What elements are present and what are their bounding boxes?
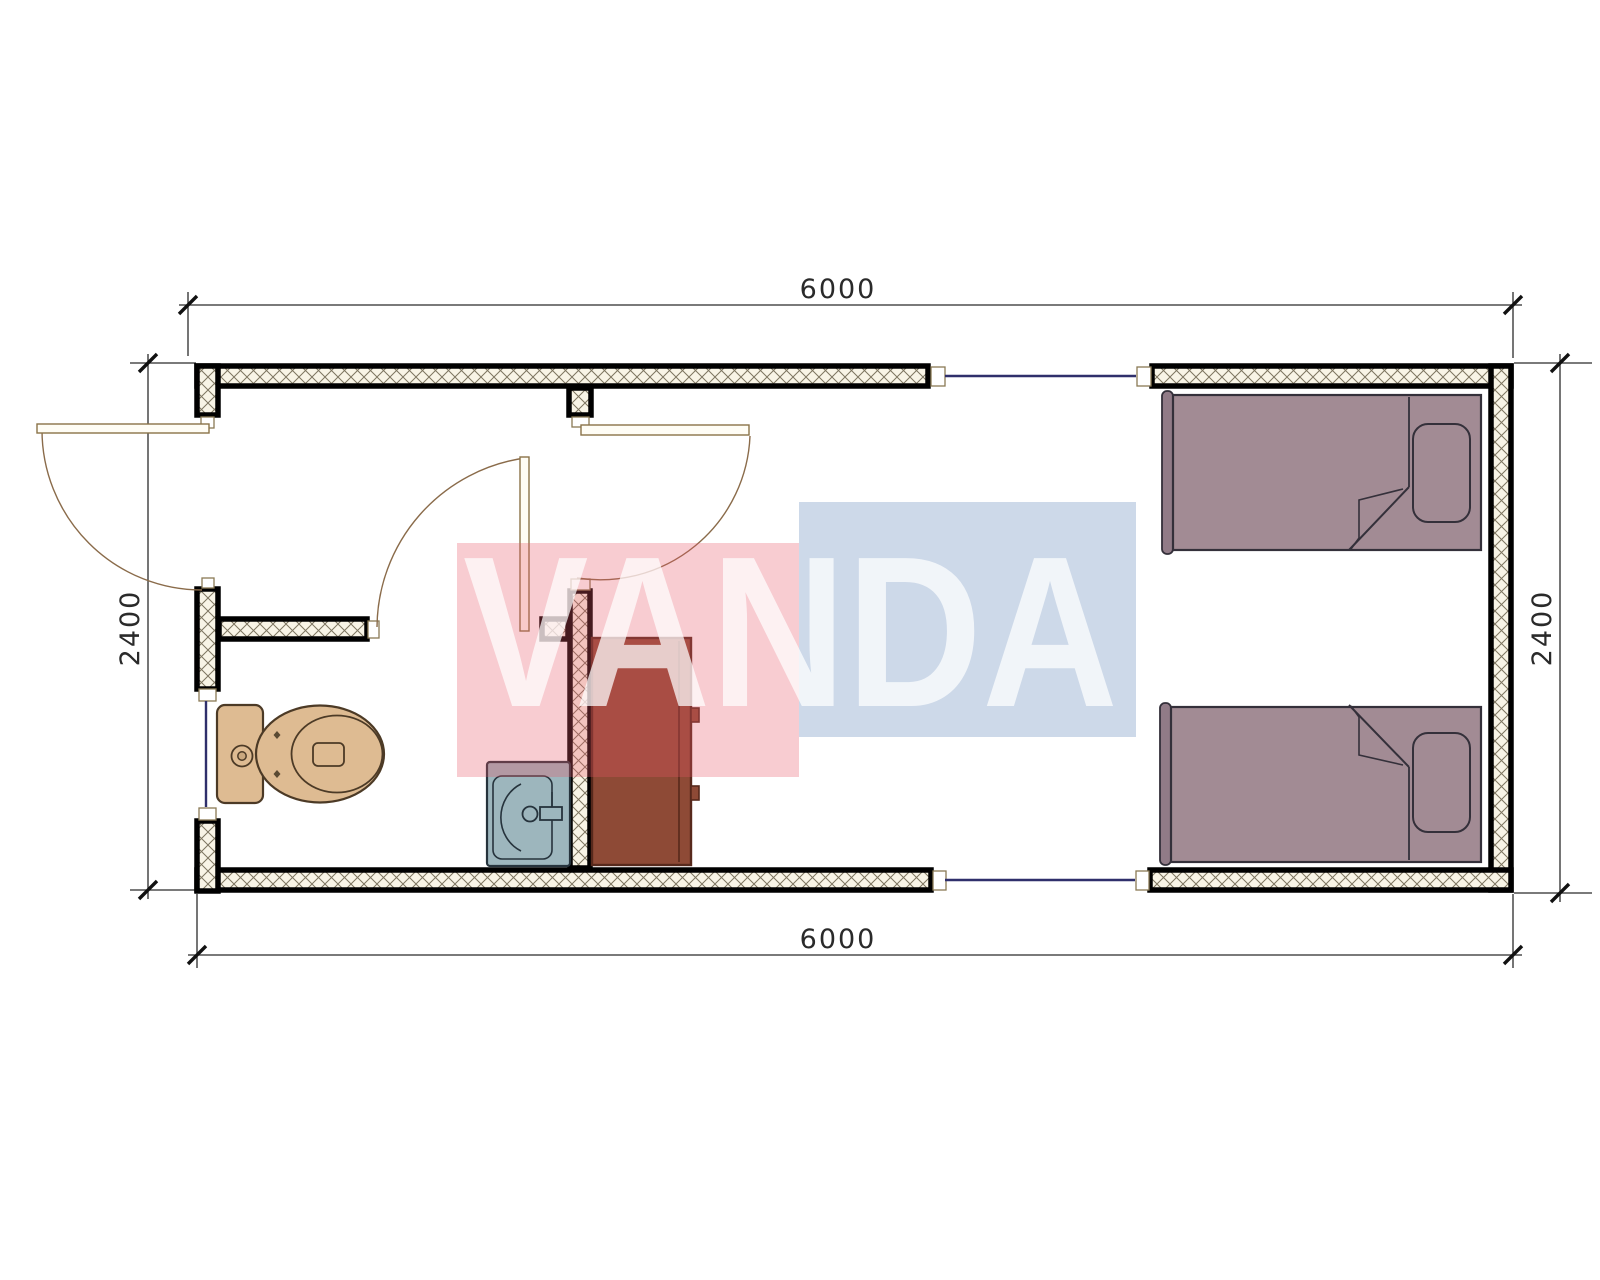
exterior-wall-left-lower xyxy=(197,821,218,891)
dimension-label-right: 2400 xyxy=(1527,590,1558,667)
bed-bottom xyxy=(1160,703,1481,865)
window-jamb xyxy=(199,808,216,820)
exterior-wall-left-mid xyxy=(197,589,218,689)
dimension-label-top: 6000 xyxy=(800,274,877,305)
watermark: VANDA xyxy=(457,502,1136,777)
entrance-door-leaf xyxy=(37,424,209,433)
sink-drain xyxy=(523,807,538,822)
bedroom-door-leaf xyxy=(581,425,749,435)
bed-pillow xyxy=(1413,424,1470,522)
exterior-wall-bottom-right xyxy=(1150,870,1511,890)
bed-headboard xyxy=(1160,703,1171,865)
wall-jamb-top-center xyxy=(569,388,591,415)
dimension-label-left: 2400 xyxy=(115,590,146,667)
window-jamb xyxy=(933,871,946,890)
bed-pillow xyxy=(1413,733,1470,832)
wash-basin xyxy=(487,762,570,866)
floor-plan-page: 6000 6000 2400 2400 xyxy=(0,0,1600,1280)
window-jamb xyxy=(199,689,216,701)
toilet-flush-button xyxy=(313,743,344,766)
cabinet-hinge xyxy=(691,786,699,800)
exterior-wall-right xyxy=(1491,366,1511,890)
sink-faucet xyxy=(540,807,562,820)
toilet-valve-knob-center xyxy=(238,752,246,760)
exterior-wall-bottom-left xyxy=(197,870,931,890)
entrance-door-swing-arc xyxy=(42,430,202,590)
toilet xyxy=(217,705,384,803)
window-jamb xyxy=(1136,871,1149,890)
window-jamb xyxy=(931,367,945,386)
floor-plan-drawing: 6000 6000 2400 2400 xyxy=(0,0,1600,1280)
watermark-text: VANDA xyxy=(463,511,1118,752)
dimension-label-bottom: 6000 xyxy=(800,924,877,955)
door-jamb xyxy=(202,578,214,588)
bed-top xyxy=(1162,391,1481,554)
exterior-wall-top-left xyxy=(197,366,928,386)
bed-headboard xyxy=(1162,391,1173,554)
window-jamb xyxy=(1137,367,1151,386)
wall-jamb-top-left-corner xyxy=(197,366,218,415)
interior-wall-bathroom xyxy=(219,619,367,639)
exterior-wall-top-right xyxy=(1152,366,1511,386)
